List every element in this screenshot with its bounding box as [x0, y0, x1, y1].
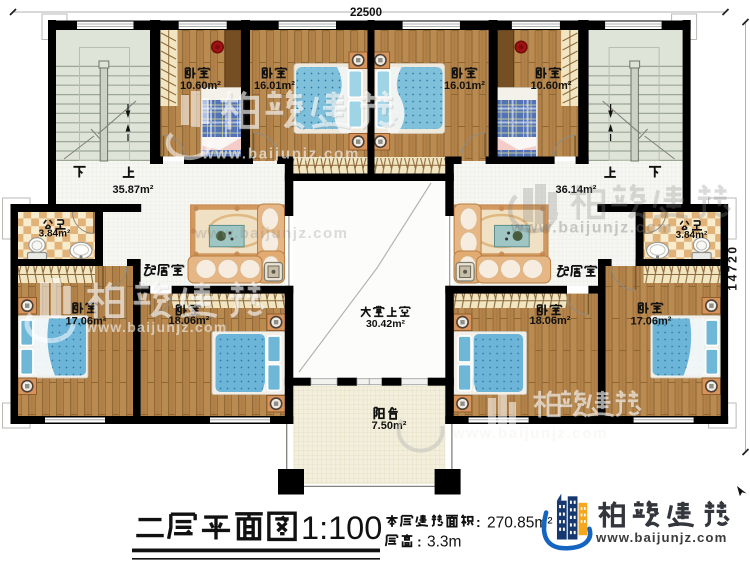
- svg-text:16.01m²: 16.01m²: [444, 80, 485, 92]
- svg-text::: :: [417, 534, 422, 550]
- svg-text:3.84m²: 3.84m²: [39, 229, 71, 240]
- svg-text:www.baijunjz.com: www.baijunjz.com: [595, 530, 727, 545]
- svg-text:1:100: 1:100: [301, 510, 382, 546]
- svg-text:35.87m²: 35.87m²: [113, 184, 154, 196]
- svg-text:3.84m²: 3.84m²: [676, 230, 708, 241]
- svg-text:30.42m²: 30.42m²: [366, 318, 406, 330]
- svg-text:www.baijunjz.com: www.baijunjz.com: [452, 425, 608, 442]
- svg-text:22500: 22500: [350, 7, 382, 19]
- svg-text:www.baijunjz.com: www.baijunjz.com: [201, 146, 360, 163]
- svg-text:17.06m²: 17.06m²: [631, 316, 672, 328]
- svg-text:www.baijunjz.com: www.baijunjz.com: [194, 225, 348, 242]
- svg-text:10.60m²: 10.60m²: [531, 80, 572, 92]
- svg-text:14720: 14720: [726, 244, 740, 290]
- svg-text:18.06m²: 18.06m²: [530, 315, 571, 327]
- svg-text:www.baijunjz.com: www.baijunjz.com: [510, 220, 673, 237]
- svg-text:3.3m: 3.3m: [427, 534, 461, 551]
- svg-text:10.60m²: 10.60m²: [180, 80, 221, 92]
- svg-text:www.baijunjz.com: www.baijunjz.com: [85, 319, 228, 335]
- svg-text::: :: [476, 514, 481, 530]
